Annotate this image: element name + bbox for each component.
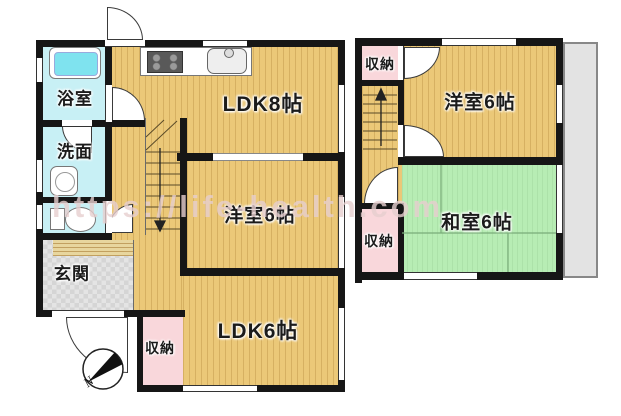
wall	[180, 268, 345, 276]
window	[36, 160, 43, 192]
label-japanese6: 和室6帖	[441, 208, 513, 235]
wall	[355, 203, 404, 209]
wall	[398, 80, 404, 125]
label-storage-1f: 収納	[145, 338, 175, 358]
window	[338, 308, 345, 380]
window	[404, 272, 477, 280]
wall	[36, 40, 345, 47]
door-opening	[398, 125, 404, 157]
toilet-tank-icon	[50, 208, 65, 230]
door-opening	[105, 85, 112, 122]
wall	[36, 233, 112, 240]
front-door-swing	[66, 317, 128, 373]
entrance-edge-line	[133, 240, 134, 310]
window	[556, 165, 563, 233]
bathtub-icon	[49, 47, 101, 79]
window	[36, 205, 43, 229]
toilet-bowl-icon	[65, 207, 96, 232]
wall	[124, 310, 143, 317]
label-western6-2f: 洋室6帖	[444, 88, 516, 115]
label-storage-2f-bottom: 収納	[364, 231, 394, 251]
door-opening	[52, 310, 124, 317]
washbasin-icon	[50, 166, 78, 196]
wall	[355, 80, 404, 86]
door-opening	[105, 40, 145, 47]
wall	[355, 38, 362, 283]
window	[556, 85, 563, 123]
wall	[105, 233, 112, 240]
label-western6-1f: 洋室6帖	[224, 201, 296, 228]
wall	[180, 118, 187, 276]
svg-text:N: N	[80, 372, 98, 391]
stove-icon	[147, 51, 183, 73]
label-bath: 浴室	[57, 85, 93, 110]
window	[36, 58, 43, 82]
label-ldk6: LDK6帖	[218, 315, 299, 345]
balcony	[563, 42, 598, 278]
wall	[398, 203, 404, 280]
entrance-step	[53, 240, 133, 256]
label-entrance: 玄関	[54, 260, 90, 285]
window	[338, 197, 345, 268]
label-storage-2f-top: 収納	[365, 54, 395, 74]
back-door-swing	[107, 7, 143, 40]
sliding-opening	[213, 153, 303, 161]
wall	[137, 310, 185, 317]
wall	[105, 122, 112, 201]
door-opening	[62, 120, 92, 127]
window	[203, 40, 247, 47]
door-opening	[105, 201, 112, 233]
wall	[137, 310, 143, 392]
window	[183, 385, 257, 392]
label-washroom: 洗面	[57, 138, 93, 163]
label-ldk8: LDK8帖	[223, 88, 304, 118]
floor-plan: N 浴室 洗面 玄関 LDK8帖 洋室6帖 LDK6帖 収納 収納 洋室6帖 和…	[0, 0, 621, 416]
wall	[36, 310, 52, 317]
door-opening	[398, 46, 404, 80]
faucet-icon	[224, 48, 234, 58]
stairs-edge-line	[145, 118, 146, 235]
wall	[36, 197, 112, 203]
window	[442, 38, 516, 46]
window	[338, 85, 345, 152]
wall	[398, 157, 563, 165]
wall	[398, 38, 404, 46]
